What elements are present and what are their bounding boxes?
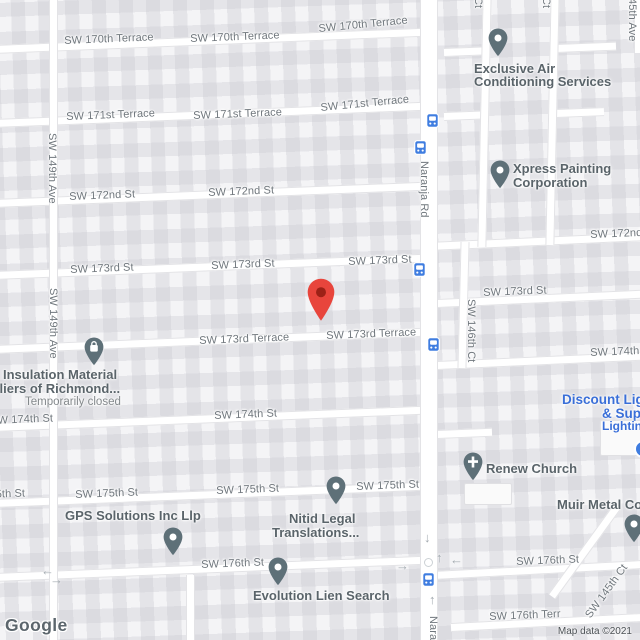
- street-label: SW 173rd St: [211, 257, 275, 272]
- pin-xpress-painting-icon[interactable]: [490, 160, 510, 189]
- road-stub: [444, 110, 482, 121]
- street-label: Ct: [472, 0, 484, 8]
- street-label: 45th Ave: [626, 0, 638, 41]
- poi-nitid-legal-label[interactable]: Nitid Legal: [289, 511, 355, 526]
- poi-muir-metal-label[interactable]: Muir Metal Co: [557, 497, 640, 512]
- poi-evolution-lien-search-label[interactable]: Evolution Lien Search: [253, 588, 390, 603]
- street-label: SW 175th St: [356, 478, 419, 493]
- road-stub-south: [186, 575, 195, 640]
- transit-stop-icon[interactable]: [427, 337, 440, 352]
- pin-exclusive-air-icon[interactable]: [488, 28, 508, 57]
- street-label: Naranja Rd: [418, 161, 430, 218]
- street-label: SW 173rd St: [70, 261, 134, 276]
- lane-arrow-icon: →: [396, 559, 409, 572]
- street-label: SW 176th St: [201, 556, 264, 571]
- poi-insulation-material-label[interactable]: Insulation Material: [3, 367, 117, 382]
- google-logo[interactable]: Google: [5, 615, 68, 636]
- pin-gps-solutions-icon[interactable]: [163, 527, 183, 556]
- church-building: [464, 483, 512, 505]
- transit-stop-icon[interactable]: [426, 113, 439, 128]
- transit-stop-icon[interactable]: [422, 572, 435, 587]
- poi-gps-solutions-label[interactable]: GPS Solutions Inc Llp: [65, 508, 201, 523]
- pin-insulation-material-icon[interactable]: [84, 337, 104, 366]
- street-label: SW 173rd St: [483, 284, 547, 299]
- pin-muir-metal-icon[interactable]: [624, 514, 640, 543]
- map-canvas[interactable]: SW 170th TerraceSW 170th TerraceSW 170th…: [0, 0, 640, 640]
- street-label: SW 173rd St: [348, 253, 412, 268]
- dropped-pin-icon[interactable]: [307, 278, 335, 322]
- road-stub: [444, 46, 482, 57]
- road-stub: [556, 107, 604, 118]
- street-label: SW 176th St: [516, 553, 579, 568]
- lane-arrow-icon: ↓: [424, 531, 431, 544]
- street-label: Ct: [540, 0, 552, 8]
- pin-nitid-legal-icon[interactable]: [326, 476, 346, 505]
- street-label: SW 174th St: [214, 407, 277, 422]
- transit-stop-icon[interactable]: [413, 262, 426, 277]
- street-label: SW 175th St: [216, 482, 279, 497]
- lane-arrow-icon: ←: [450, 553, 463, 566]
- street-label: SW 149th Ave: [47, 288, 59, 359]
- poi-insulation-material-label[interactable]: Temporarily closed: [25, 396, 121, 408]
- poi-discount-lighting-label[interactable]: Discount Ligh: [562, 392, 640, 407]
- roundabout-dot: [424, 558, 433, 567]
- pin-evolution-lien-search-icon[interactable]: [268, 557, 288, 586]
- street-label: SW 174th St: [590, 344, 640, 359]
- street-label: SW 175th St: [75, 486, 138, 501]
- lane-arrow-icon: ↑: [429, 593, 436, 606]
- street-label: SW 172nd St: [590, 226, 640, 241]
- poi-xpress-painting-label[interactable]: Corporation: [513, 175, 587, 190]
- street-label: SW 146th Ct: [465, 299, 477, 362]
- lane-arrow-icon: ↑: [436, 551, 443, 564]
- transit-stop-icon[interactable]: [414, 140, 427, 155]
- poi-insulation-material-label[interactable]: Suppliers of Richmond...: [0, 381, 120, 396]
- pin-renew-church-icon[interactable]: [463, 452, 483, 481]
- poi-nitid-legal-label[interactable]: Translations...: [272, 525, 359, 540]
- street-label: SW 149th Ave: [46, 133, 58, 204]
- poi-discount-lighting-label[interactable]: Lighting: [602, 419, 640, 433]
- poi-xpress-painting-label[interactable]: Xpress Painting: [513, 161, 611, 176]
- poi-renew-church-label[interactable]: Renew Church: [486, 461, 577, 476]
- poi-exclusive-air-label[interactable]: Conditioning Services: [474, 74, 611, 89]
- map-data-attribution: Map data ©2021: [558, 626, 632, 637]
- lane-arrow-icon: →: [50, 573, 63, 586]
- street-label: Naranja Rd: [427, 616, 439, 640]
